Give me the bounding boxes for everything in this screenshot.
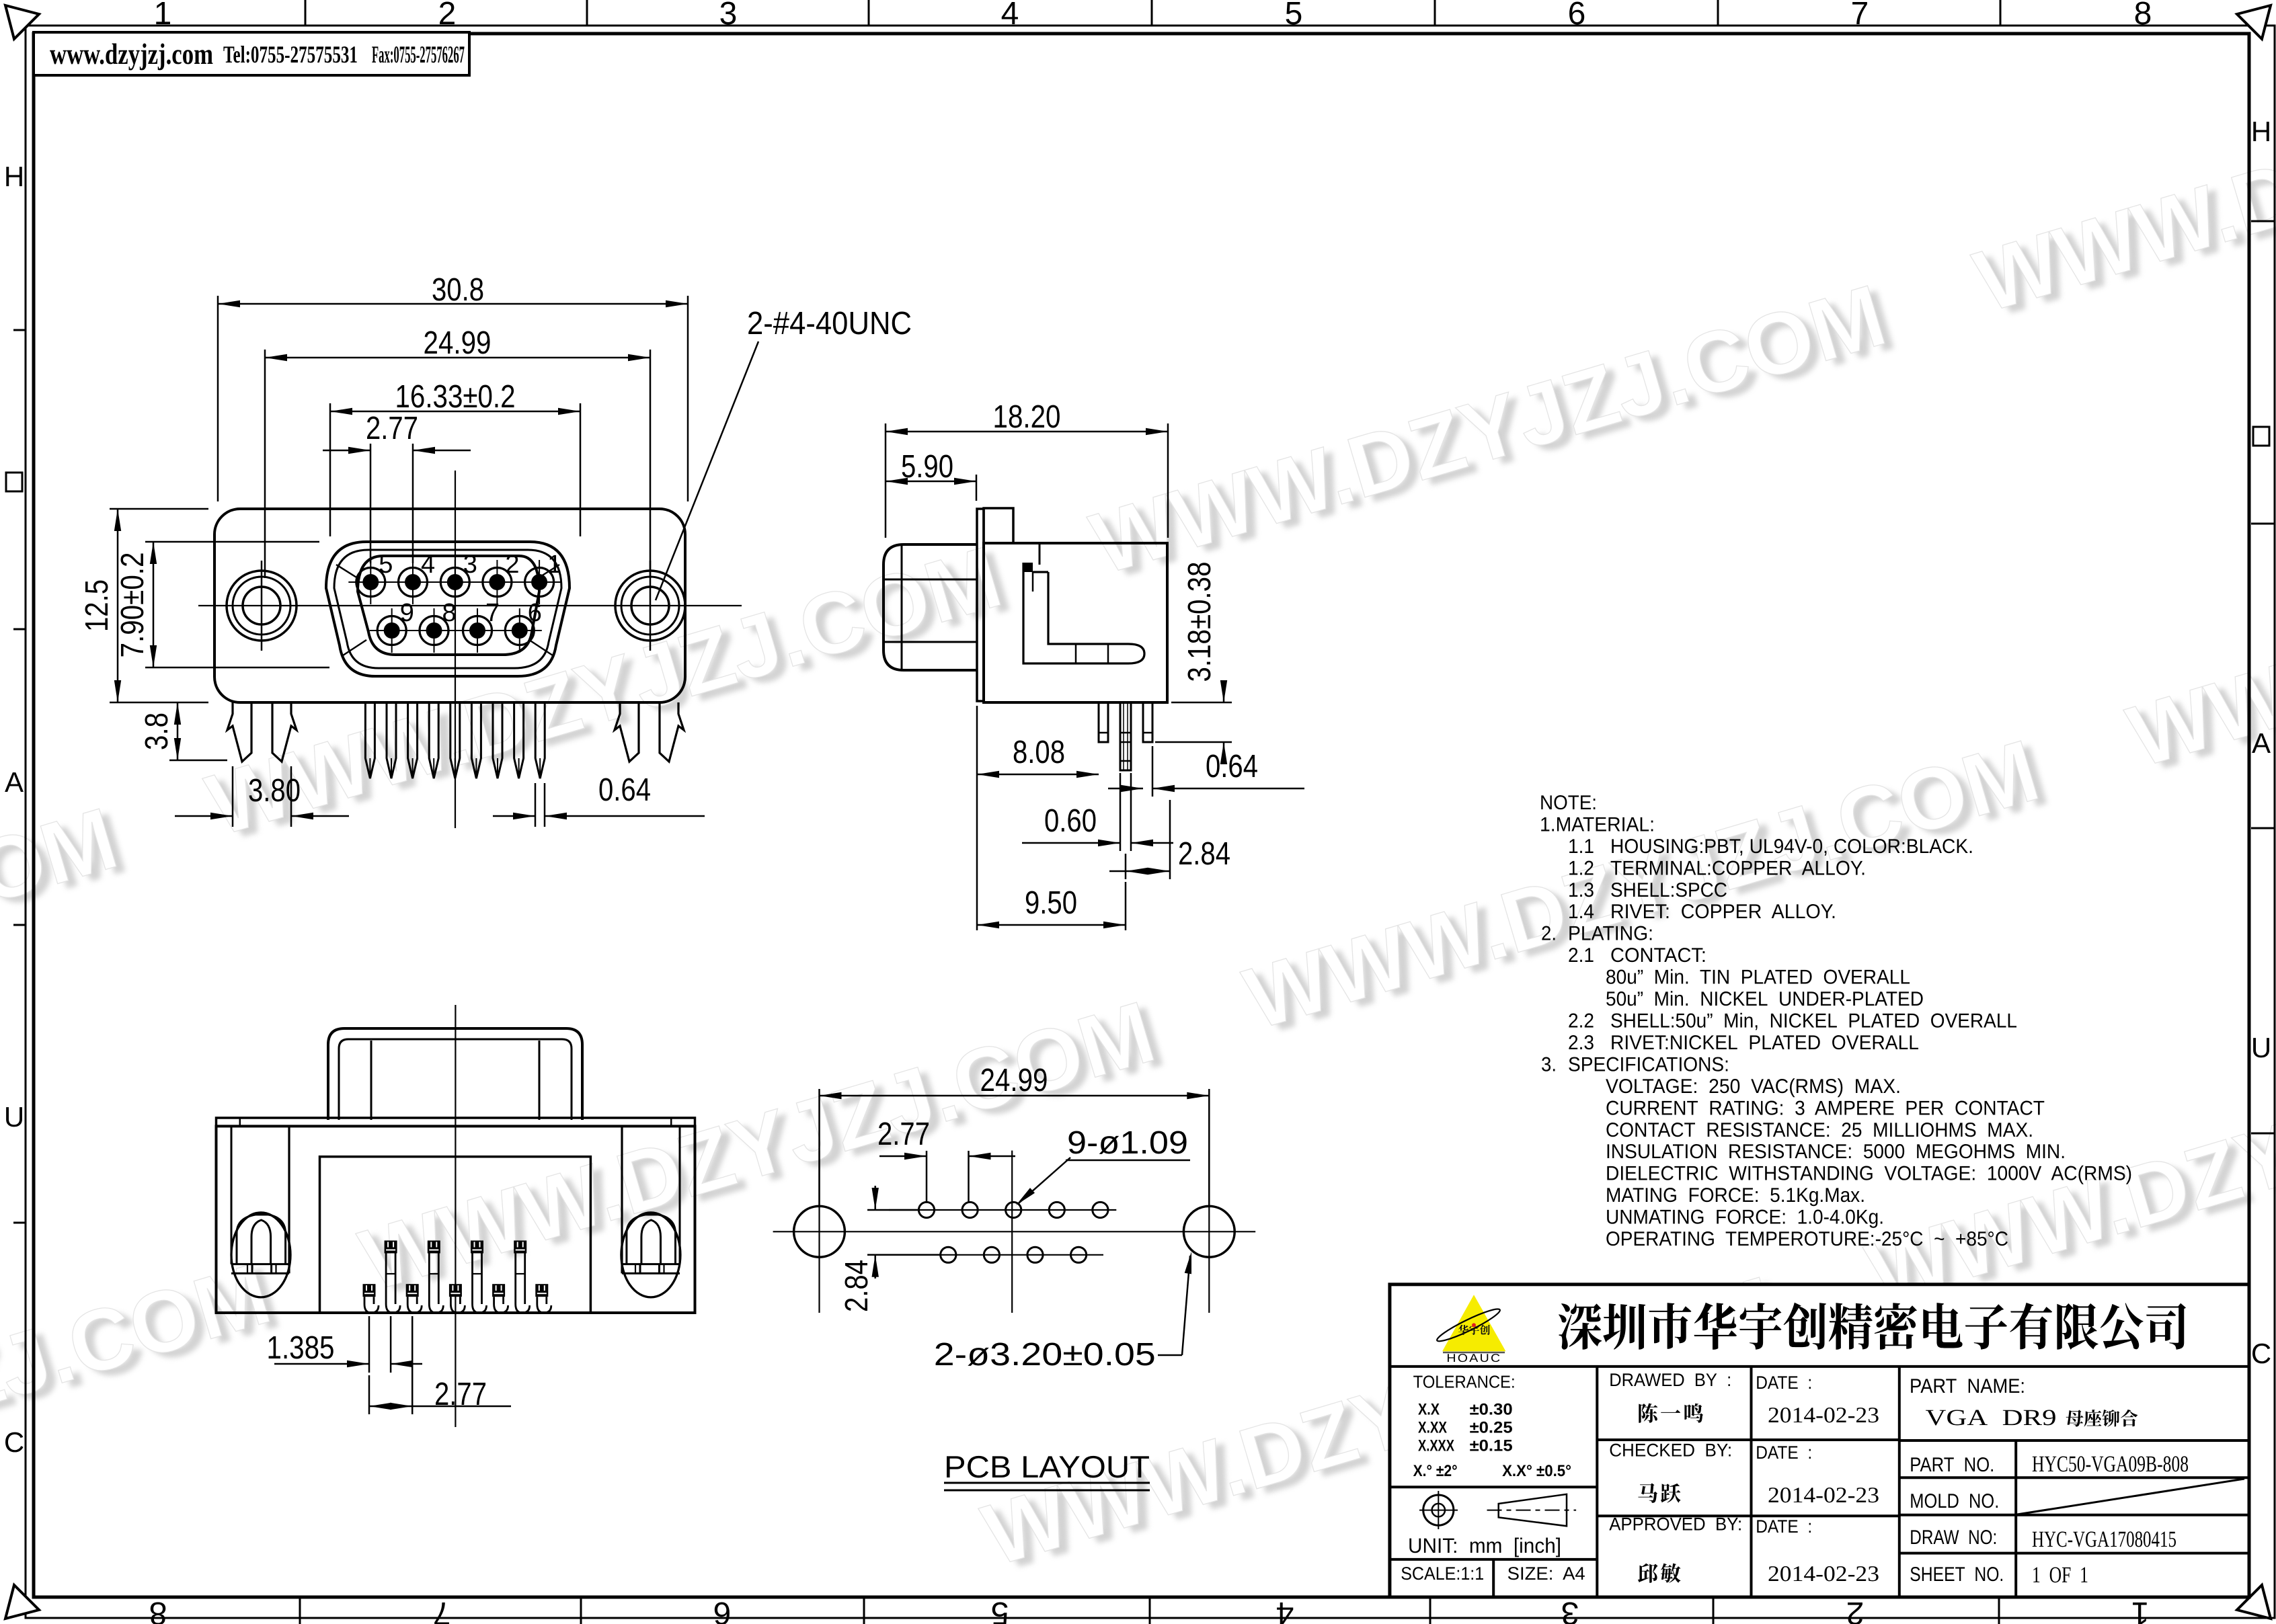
svg-text:1 OF 1: 1 OF 1: [2032, 1563, 2088, 1588]
svg-text:1: 1: [154, 0, 172, 32]
svg-text:2.1: 2.1: [1568, 944, 1594, 967]
svg-text:4: 4: [1276, 1595, 1294, 1624]
svg-text:5: 5: [1285, 0, 1303, 32]
svg-text:www.dzyjzj.com: www.dzyjzj.com: [50, 38, 213, 71]
svg-text:6: 6: [1568, 0, 1586, 32]
svg-text:C: C: [4, 1426, 24, 1458]
svg-text:Tel:0755-27575531: Tel:0755-27575531: [223, 41, 358, 68]
svg-text:2014-02-23: 2014-02-23: [1768, 1484, 1879, 1508]
svg-text:1.MATERIAL:: 1.MATERIAL:: [1540, 814, 1655, 836]
svg-text:HOUSING:PBT, UL94V-0, COLOR:BL: HOUSING:PBT, UL94V-0, COLOR:BLACK.: [1610, 836, 1973, 858]
svg-text:H: H: [4, 161, 24, 192]
svg-text:A: A: [5, 766, 24, 798]
svg-text:SHELL:SPCC: SHELL:SPCC: [1610, 879, 1727, 901]
svg-text:16.33±0.2: 16.33±0.2: [395, 379, 516, 415]
svg-text:RIVET:NICKEL PLATED OVERALL: RIVET:NICKEL PLATED OVERALL: [1610, 1032, 1919, 1054]
svg-text:APPROVED BY:: APPROVED BY:: [1609, 1514, 1742, 1535]
svg-text:3: 3: [463, 551, 477, 579]
svg-text:CONTACT:: CONTACT:: [1610, 944, 1706, 967]
svg-text:MATING FORCE: 5.1Kg.Max.: MATING FORCE: 5.1Kg.Max.: [1606, 1184, 1865, 1207]
svg-text:RIVET: COPPER ALLOY.: RIVET: COPPER ALLOY.: [1610, 901, 1836, 923]
svg-text:3.18±0.38: 3.18±0.38: [1182, 562, 1218, 682]
svg-text:PLATING:: PLATING:: [1568, 923, 1653, 945]
svg-text:X.XXX: X.XXX: [1418, 1436, 1454, 1455]
svg-text:5.90: 5.90: [901, 449, 953, 485]
svg-text:INSULATION RESISTANCE: 5000: INSULATION RESISTANCE: 5000 MEGOHMS MIN.: [1606, 1141, 2066, 1163]
svg-text:0.60: 0.60: [1044, 803, 1097, 839]
svg-text:2.84: 2.84: [839, 1260, 875, 1312]
svg-text:18.20: 18.20: [993, 399, 1061, 435]
svg-text:TERMINAL:COPPER ALLOY.: TERMINAL:COPPER ALLOY.: [1610, 857, 1866, 879]
svg-text:VGA DR9: VGA DR9: [1926, 1406, 2057, 1430]
svg-text:1: 1: [2131, 1595, 2150, 1624]
svg-text:2014-02-23: 2014-02-23: [1768, 1404, 1879, 1428]
svg-text:9: 9: [400, 599, 414, 627]
svg-text:6: 6: [713, 1595, 732, 1624]
svg-text:2-#4-40UNC: 2-#4-40UNC: [747, 306, 912, 341]
svg-text:2.77: 2.77: [877, 1116, 930, 1152]
svg-text:2014-02-23: 2014-02-23: [1768, 1562, 1879, 1586]
svg-text:PART NAME:: PART NAME:: [1910, 1375, 2025, 1397]
svg-text:VOLTAGE: 250 VAC(RMS) MAX.: VOLTAGE: 250 VAC(RMS) MAX.: [1606, 1075, 1901, 1098]
svg-text:X.XX: X.XX: [1418, 1418, 1447, 1436]
svg-text:±0.25: ±0.25: [1470, 1418, 1513, 1436]
svg-text:CURRENT RATING: 3 AMPERE P: CURRENT RATING: 3 AMPERE PER CONTACT: [1606, 1097, 2045, 1119]
svg-text:24.99: 24.99: [980, 1063, 1048, 1098]
svg-text:U: U: [4, 1101, 24, 1133]
svg-text:DRAW NO:: DRAW NO:: [1910, 1527, 1997, 1549]
svg-text:2: 2: [505, 551, 519, 579]
svg-text:30.8: 30.8: [432, 272, 484, 308]
svg-text:HYC-VGA17080415: HYC-VGA17080415: [2032, 1527, 2176, 1552]
svg-text:A: A: [2252, 727, 2271, 759]
svg-text:3.8: 3.8: [139, 713, 175, 750]
svg-text:X.X: X.X: [1418, 1400, 1440, 1418]
svg-text:7: 7: [1851, 0, 1869, 32]
svg-text:U: U: [2251, 1032, 2271, 1063]
svg-text:DATE :: DATE :: [1756, 1373, 1812, 1393]
svg-text:3: 3: [719, 0, 738, 32]
svg-text:CHECKED BY:: CHECKED BY:: [1609, 1440, 1732, 1461]
svg-text:PART NO.: PART NO.: [1910, 1454, 1994, 1476]
svg-text:8: 8: [2134, 0, 2152, 32]
svg-text:MOLD NO.: MOLD NO.: [1910, 1490, 1999, 1512]
svg-text:OPERATING TEMPEROTURE:-25°C: OPERATING TEMPEROTURE:-25°C ~ +85°C: [1606, 1228, 2008, 1250]
svg-text:HYC50-VGA09B-808: HYC50-VGA09B-808: [2032, 1452, 2189, 1477]
svg-text:3.80: 3.80: [248, 773, 301, 809]
svg-text:1.4: 1.4: [1568, 901, 1594, 923]
svg-text:DATE :: DATE :: [1756, 1516, 1812, 1537]
svg-text:C: C: [2251, 1338, 2271, 1369]
svg-text:±0.30: ±0.30: [1470, 1400, 1513, 1418]
svg-text:SIZE: A4: SIZE: A4: [1507, 1564, 1585, 1584]
svg-text:NOTE:: NOTE:: [1540, 792, 1597, 814]
svg-text:1: 1: [547, 551, 561, 579]
svg-text:2.: 2.: [1541, 923, 1557, 945]
svg-text:3: 3: [1561, 1595, 1579, 1624]
svg-text:HOAUC: HOAUC: [1446, 1352, 1501, 1365]
svg-text:7: 7: [485, 599, 500, 627]
svg-text:DATE :: DATE :: [1756, 1443, 1812, 1463]
svg-text:DRAWED BY :: DRAWED BY :: [1609, 1370, 1731, 1390]
svg-text:4: 4: [421, 551, 435, 579]
svg-text:5: 5: [379, 551, 393, 579]
svg-text:0.64: 0.64: [1206, 749, 1258, 784]
svg-text:5: 5: [991, 1595, 1009, 1624]
svg-text:X.X° ±0.5°: X.X° ±0.5°: [1502, 1462, 1571, 1480]
svg-text:4: 4: [1001, 0, 1019, 32]
svg-text:8.08: 8.08: [1013, 735, 1065, 770]
svg-text:2: 2: [438, 0, 457, 32]
svg-text:24.99: 24.99: [424, 325, 492, 361]
svg-text:80u” Min. TIN PLATED OVERA: 80u” Min. TIN PLATED OVERALL: [1606, 967, 1910, 989]
svg-text:2.77: 2.77: [366, 411, 418, 446]
svg-text:SPECIFICATIONS:: SPECIFICATIONS:: [1568, 1053, 1729, 1075]
svg-text:DIELECTRIC WITHSTANDING VOLT: DIELECTRIC WITHSTANDING VOLTAGE: 1000V A…: [1606, 1163, 2132, 1185]
svg-text:1.2: 1.2: [1568, 857, 1594, 879]
svg-text:7.90±0.2: 7.90±0.2: [115, 553, 151, 658]
svg-text:3.: 3.: [1541, 1053, 1557, 1075]
svg-text:12.5: 12.5: [79, 579, 115, 632]
svg-text:50u” Min. NICKEL UNDER-PLAT: 50u” Min. NICKEL UNDER-PLATED: [1606, 988, 1924, 1010]
svg-text:0.64: 0.64: [598, 772, 651, 808]
svg-text:X.° ±2°: X.° ±2°: [1413, 1462, 1458, 1480]
svg-text:1.1: 1.1: [1568, 836, 1594, 858]
svg-text:8: 8: [149, 1595, 167, 1624]
svg-text:9.50: 9.50: [1025, 885, 1077, 921]
svg-text:UNIT: mm [inch]: UNIT: mm [inch]: [1408, 1534, 1561, 1557]
svg-text:UNMATING FORCE: 1.0-4.0Kg.: UNMATING FORCE: 1.0-4.0Kg.: [1606, 1207, 1884, 1229]
svg-text:7: 7: [433, 1595, 451, 1624]
svg-text:8: 8: [442, 599, 457, 627]
svg-text:SHEET NO.: SHEET NO.: [1910, 1564, 2004, 1586]
svg-text:Fax:0755-27576267: Fax:0755-27576267: [372, 41, 465, 68]
svg-text:H: H: [2251, 116, 2271, 147]
svg-text:TOLERANCE:: TOLERANCE:: [1413, 1372, 1516, 1392]
svg-text:2-ø3.20±0.05: 2-ø3.20±0.05: [934, 1337, 1156, 1373]
svg-text:2.3: 2.3: [1568, 1032, 1594, 1054]
svg-text:PCB LAYOUT: PCB LAYOUT: [944, 1449, 1150, 1484]
svg-text:2.84: 2.84: [1178, 836, 1230, 872]
svg-text:1.3: 1.3: [1568, 879, 1594, 901]
svg-text:2.77: 2.77: [434, 1377, 487, 1412]
svg-text:2.2: 2.2: [1568, 1010, 1594, 1032]
svg-text:9-ø1.09: 9-ø1.09: [1067, 1125, 1188, 1161]
svg-text:SHELL:50u” Min, NICKEL PLAT: SHELL:50u” Min, NICKEL PLATED OVERALL: [1610, 1010, 2017, 1032]
svg-text:2: 2: [1846, 1595, 1865, 1624]
svg-text:6: 6: [528, 599, 542, 627]
svg-text:CONTACT RESISTANCE: 25 MILL: CONTACT RESISTANCE: 25 MILLIOHMS MAX.: [1606, 1119, 2033, 1141]
svg-text:SCALE:1:1: SCALE:1:1: [1401, 1564, 1484, 1584]
svg-text:±0.15: ±0.15: [1470, 1436, 1513, 1455]
svg-text:1.385: 1.385: [267, 1330, 335, 1366]
